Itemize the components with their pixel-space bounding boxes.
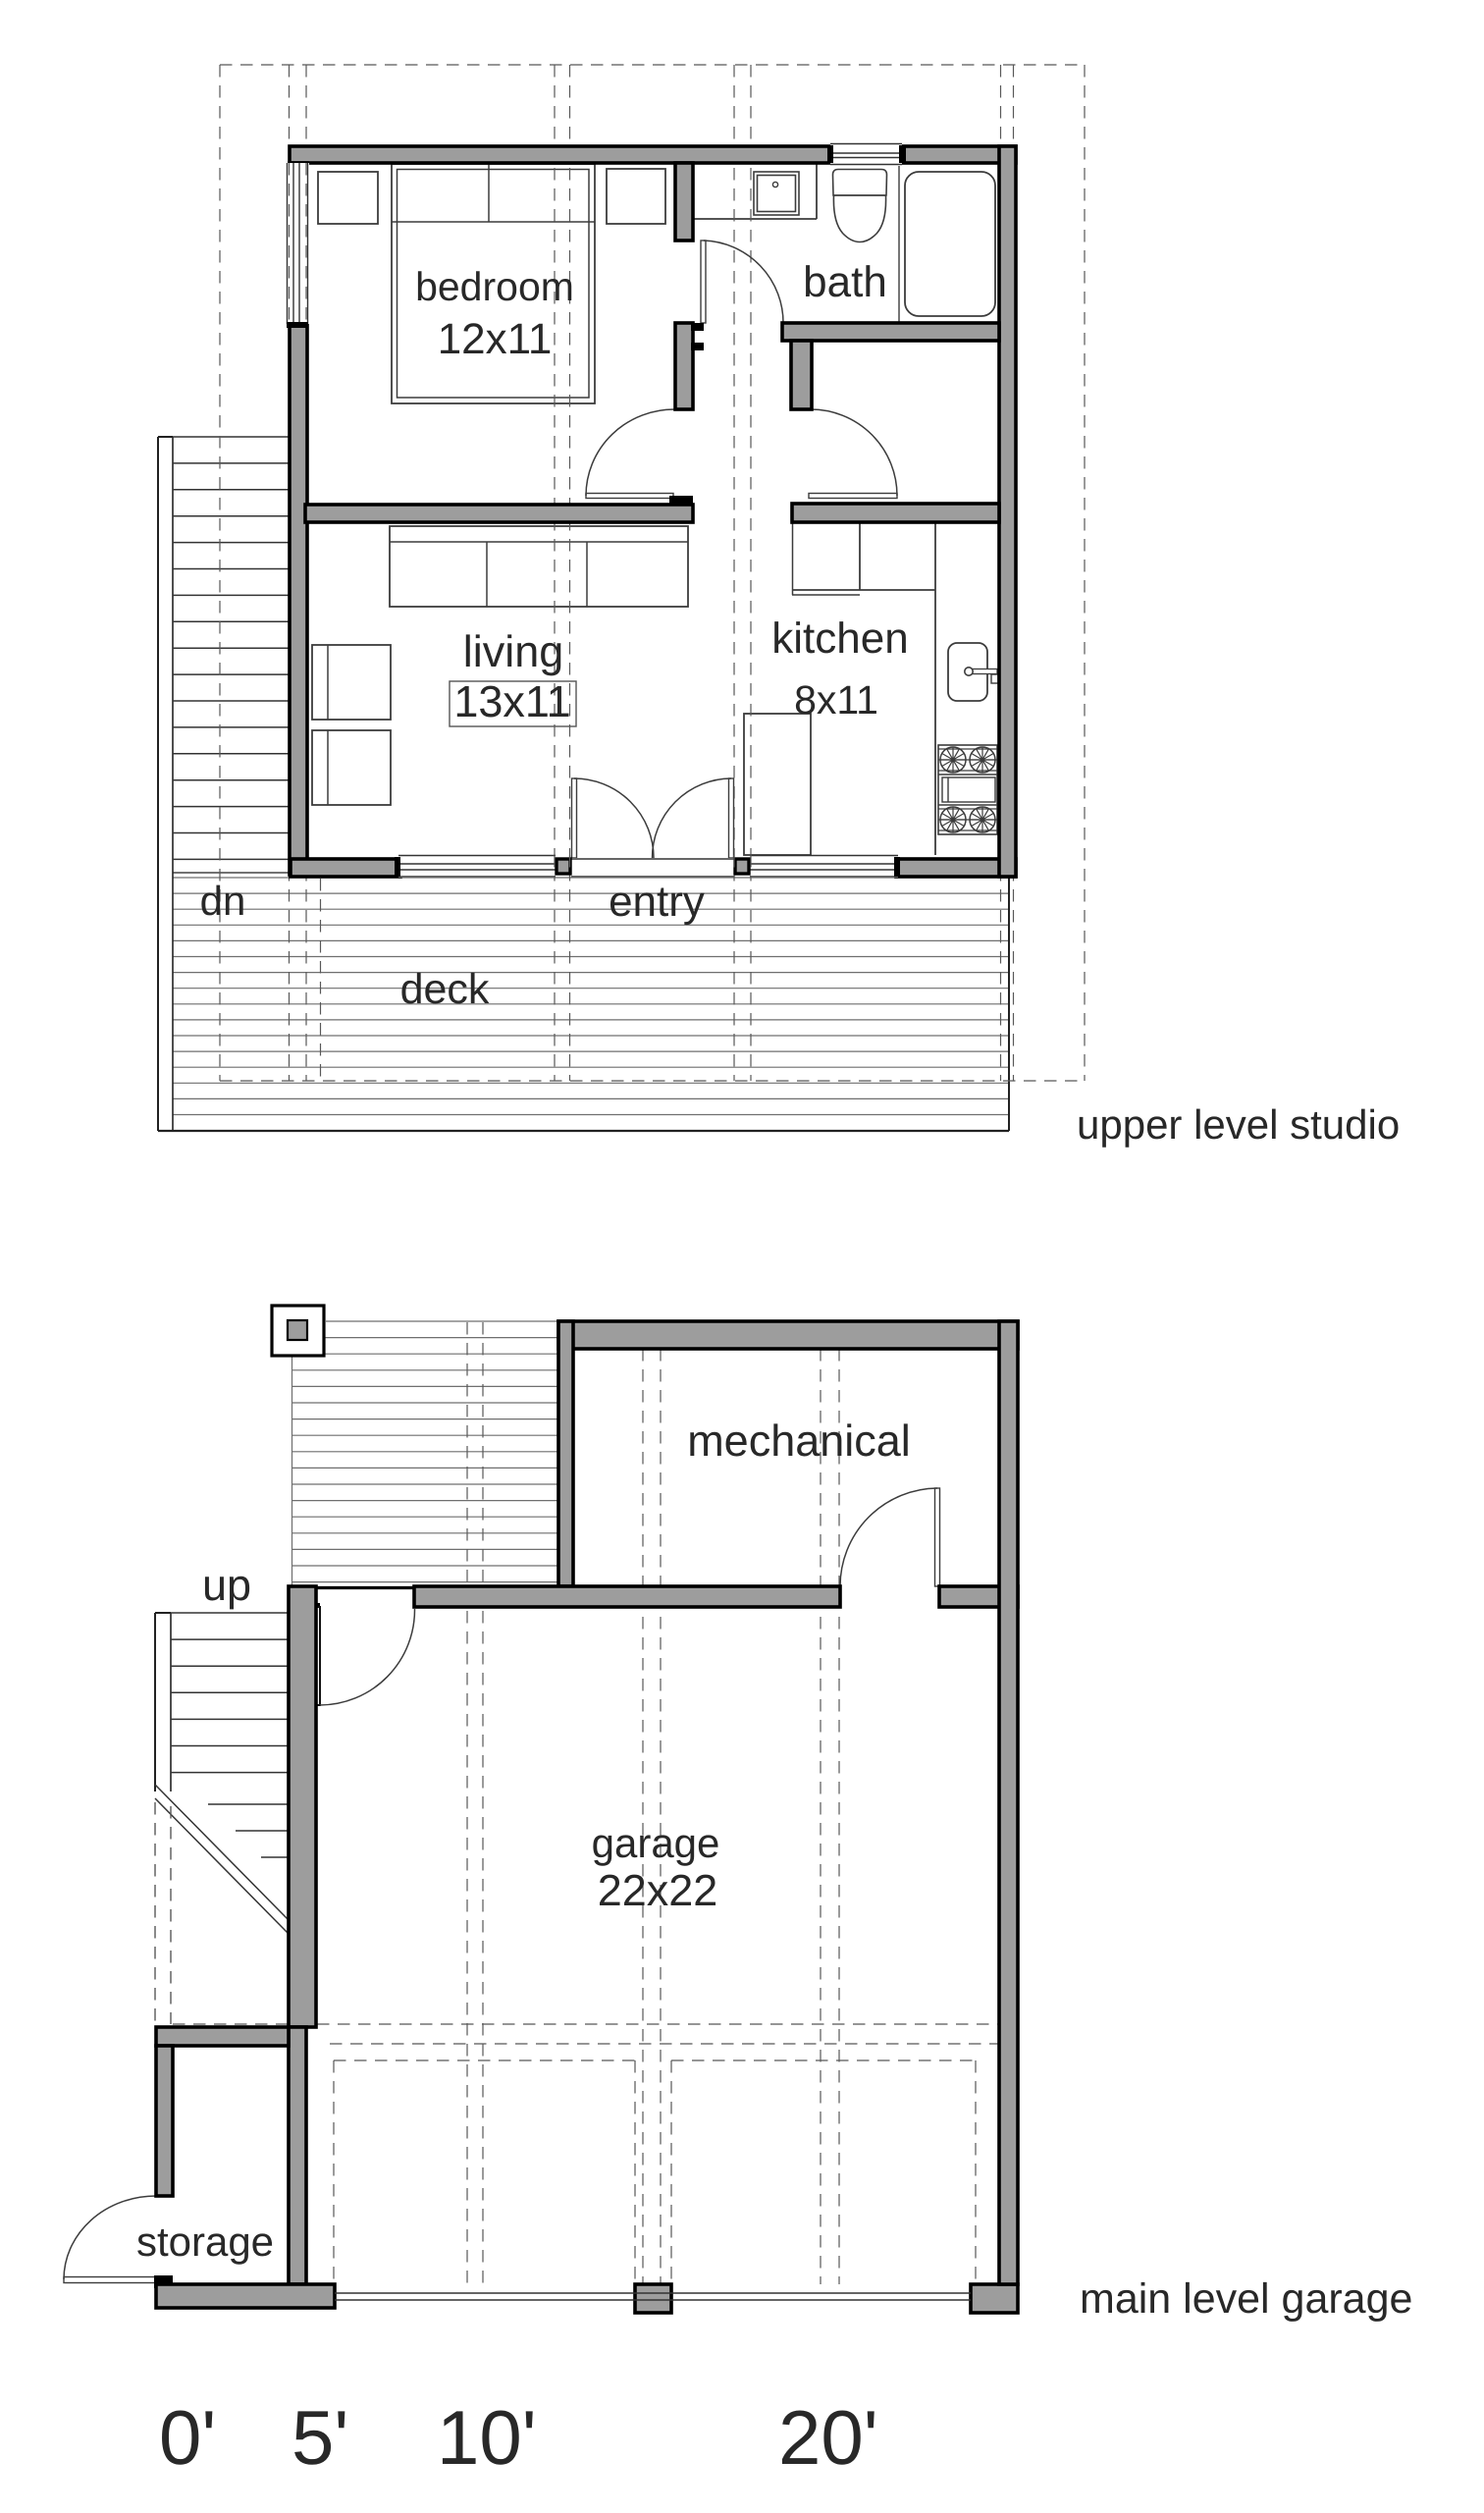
svg-text:8x11: 8x11: [794, 677, 878, 722]
svg-text:bath: bath: [803, 258, 887, 306]
svg-text:12x11: 12x11: [438, 315, 553, 363]
svg-text:5': 5': [291, 2394, 348, 2481]
svg-text:20': 20': [778, 2394, 878, 2481]
svg-text:upper level studio: upper level studio: [1077, 1101, 1400, 1148]
svg-text:0': 0': [159, 2394, 216, 2481]
svg-text:dn: dn: [200, 878, 246, 924]
svg-text:mechanical: mechanical: [687, 1416, 911, 1466]
svg-text:entry: entry: [609, 878, 705, 926]
svg-text:storage: storage: [136, 2219, 274, 2265]
svg-text:deck: deck: [400, 966, 490, 1013]
svg-text:bedroom: bedroom: [415, 264, 574, 309]
svg-text:up: up: [202, 1560, 251, 1610]
svg-text:living: living: [463, 626, 564, 676]
svg-text:main level garage: main level garage: [1080, 2275, 1412, 2323]
svg-text:kitchen: kitchen: [771, 615, 908, 663]
svg-text:22x22: 22x22: [598, 1865, 718, 1915]
svg-text:garage: garage: [592, 1820, 720, 1866]
svg-text:13x11: 13x11: [453, 676, 570, 726]
svg-text:10': 10': [437, 2394, 537, 2481]
